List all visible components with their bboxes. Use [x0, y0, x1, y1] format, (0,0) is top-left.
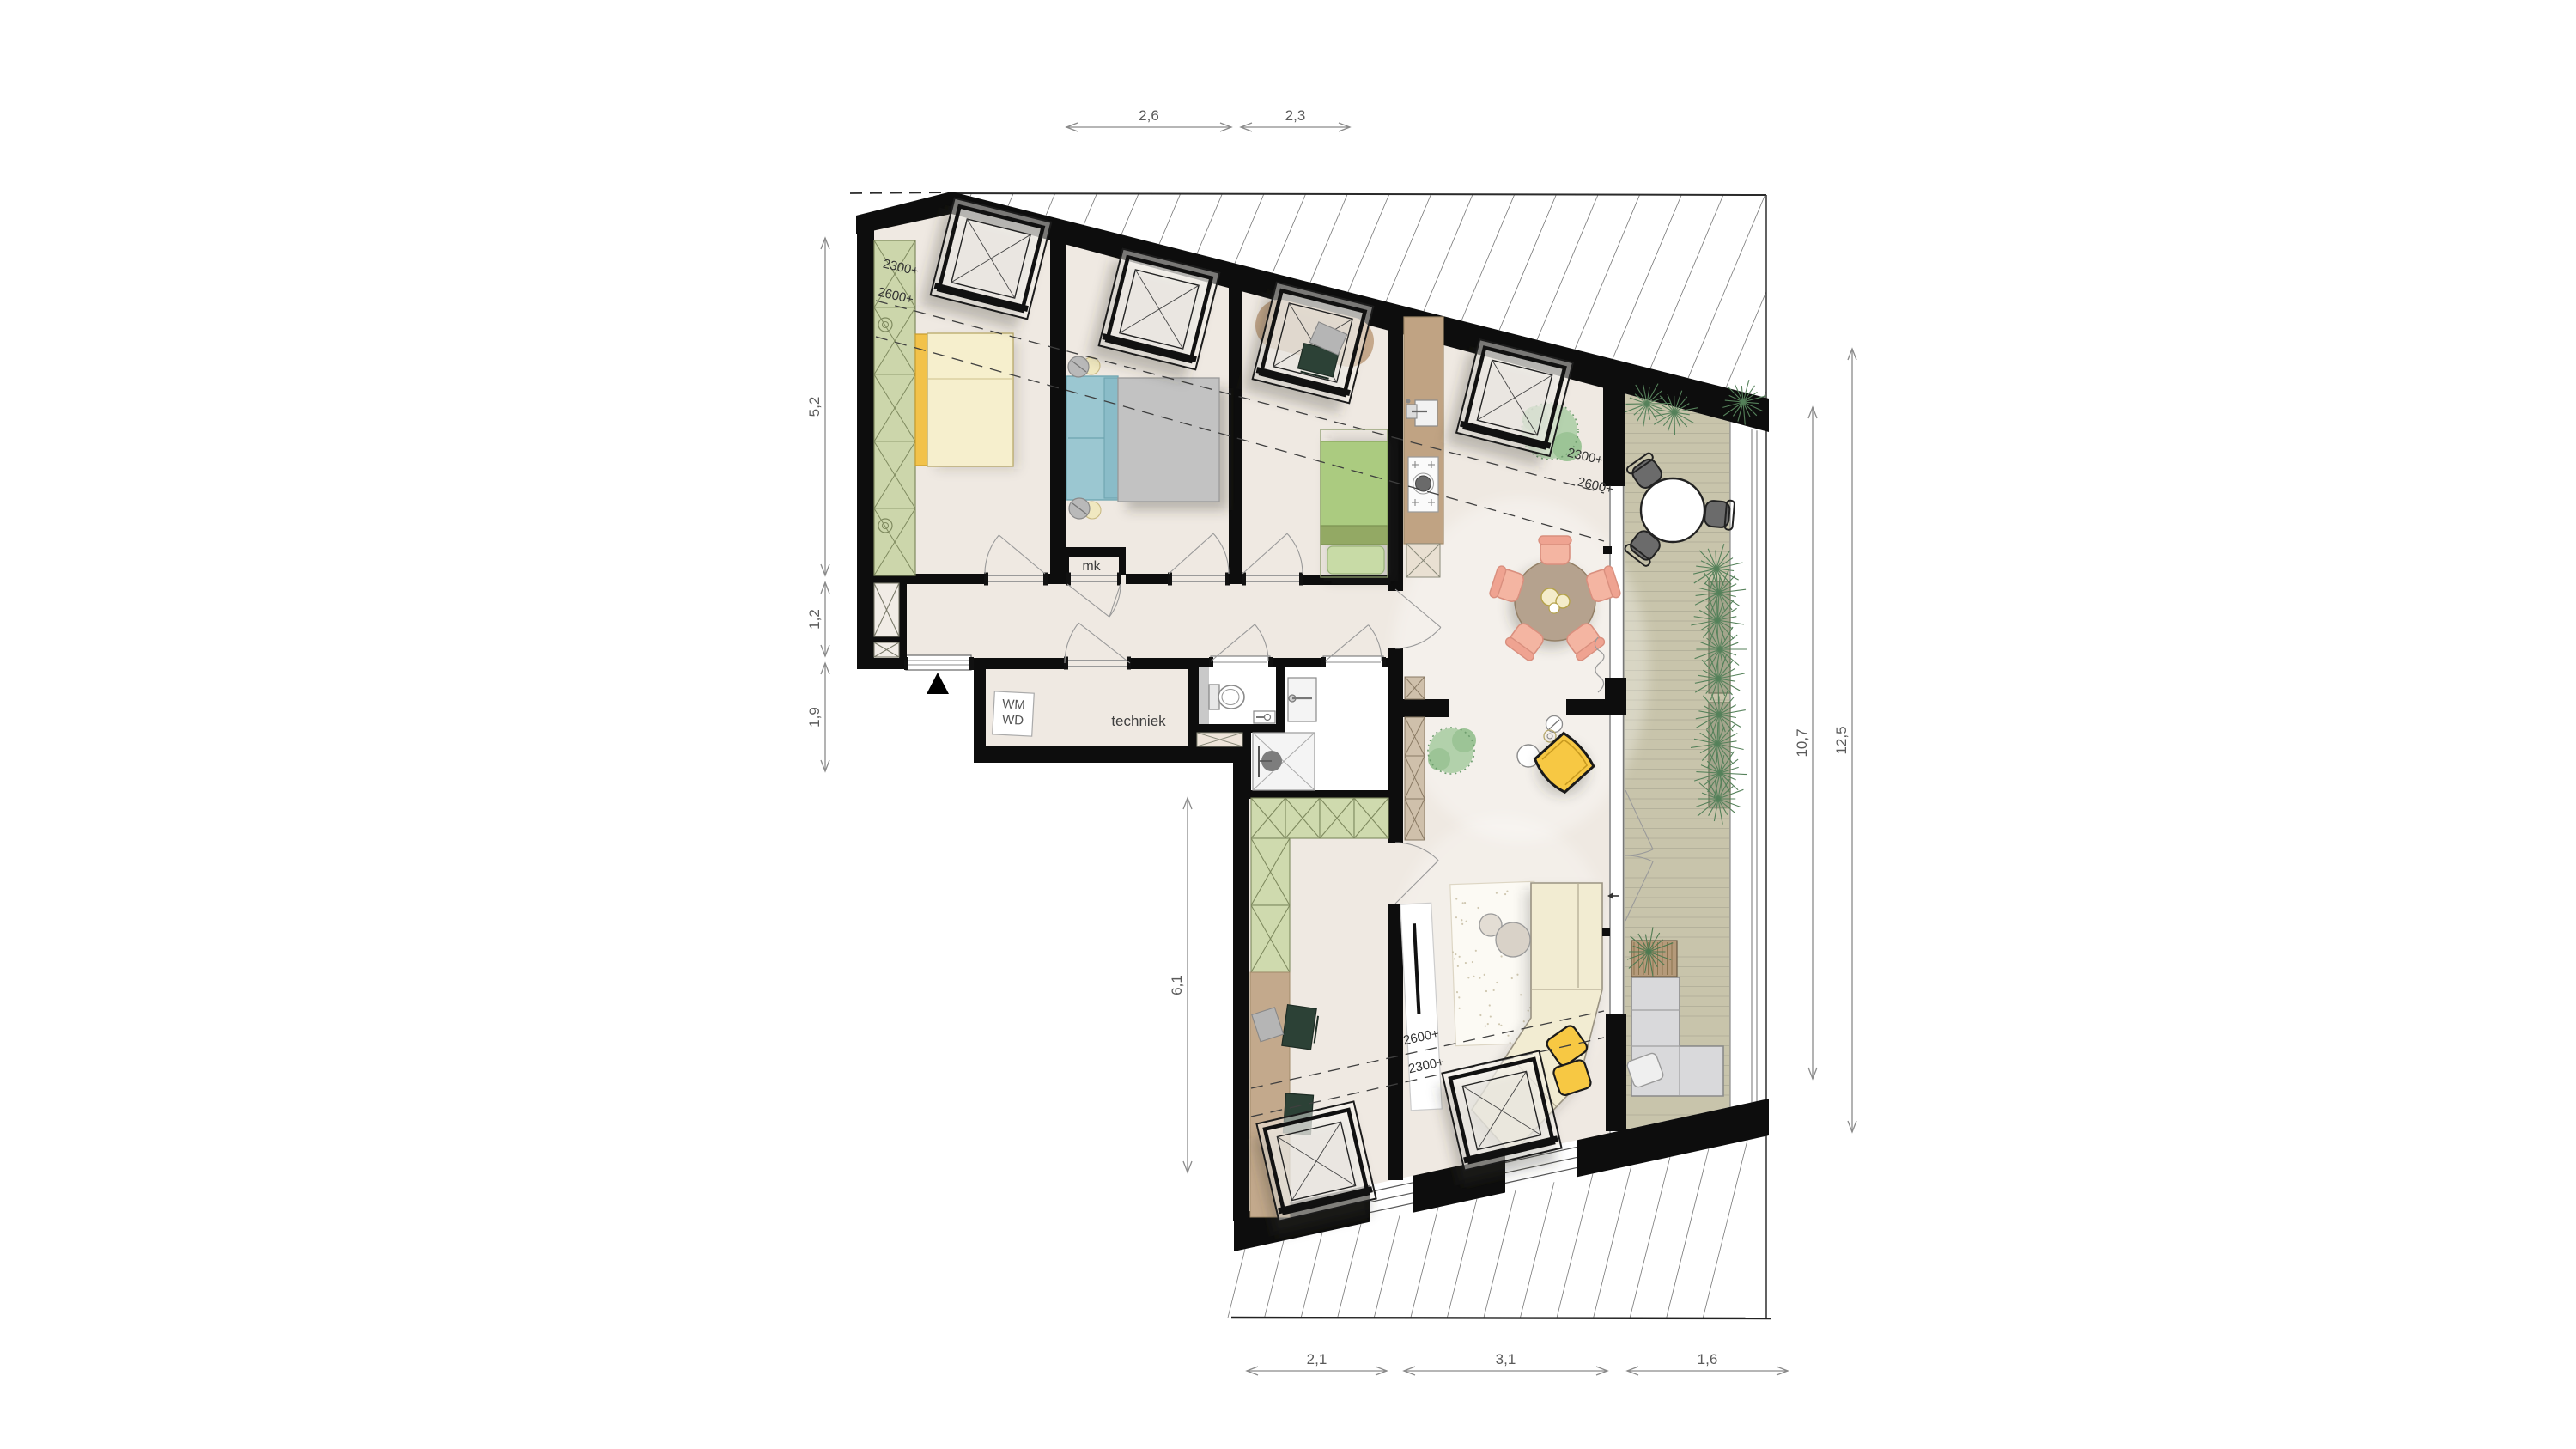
svg-text:10,7: 10,7: [1794, 728, 1810, 757]
svg-text:5,2: 5,2: [806, 397, 823, 417]
svg-text:2,6: 2,6: [1139, 107, 1159, 124]
svg-text:3,1: 3,1: [1496, 1351, 1516, 1367]
svg-text:mk: mk: [1082, 559, 1101, 574]
svg-text:2,3: 2,3: [1285, 107, 1306, 124]
svg-text:6,1: 6,1: [1169, 975, 1185, 995]
svg-text:1,9: 1,9: [806, 707, 823, 728]
svg-text:WM: WM: [1002, 697, 1026, 712]
svg-text:techniek: techniek: [1111, 713, 1166, 729]
svg-text:1,2: 1,2: [806, 609, 823, 630]
svg-text:2,1: 2,1: [1307, 1351, 1327, 1367]
svg-text:1,6: 1,6: [1698, 1351, 1718, 1367]
svg-text:WD: WD: [1002, 712, 1024, 728]
svg-text:12,5: 12,5: [1833, 726, 1850, 754]
